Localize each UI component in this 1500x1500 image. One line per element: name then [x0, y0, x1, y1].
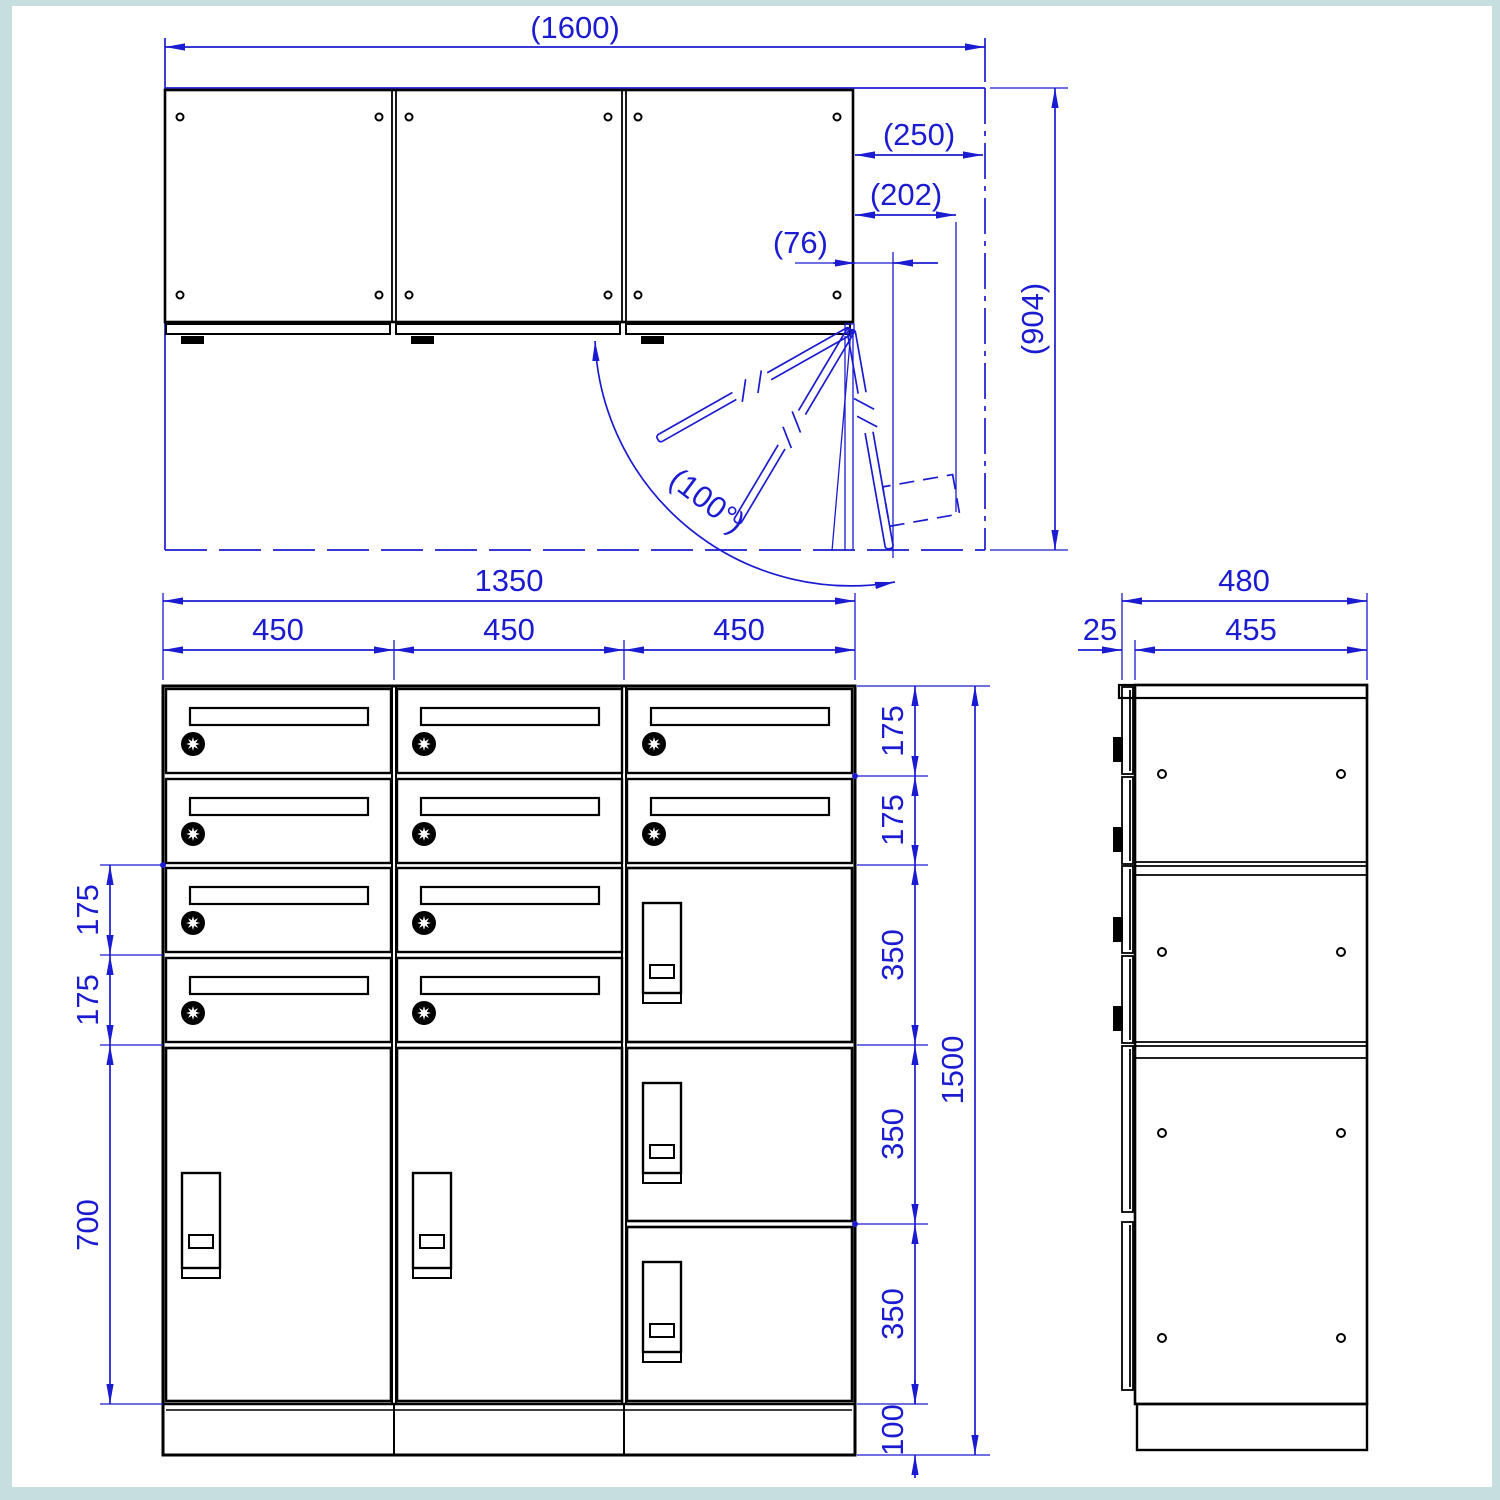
dim-left-row4: 175 [70, 974, 105, 1026]
handle-block-top [181, 336, 204, 344]
side-view: 480 455 25 [1078, 563, 1367, 1450]
door-open-30 [653, 322, 855, 447]
door-edges-closed [166, 324, 850, 344]
dim-column-width: 450 [483, 612, 535, 647]
side-base [1137, 1404, 1367, 1450]
dim-door-protrusion: (76) [773, 225, 828, 260]
dim-handle-clearance: (202) [870, 177, 942, 212]
dim-base-height: 100 [875, 1404, 910, 1456]
swing-arc [595, 341, 895, 586]
handle-block-top [411, 336, 434, 344]
dim-depth-overall: 480 [1218, 563, 1270, 598]
dim-mid-door1: 350 [875, 929, 910, 981]
top-view: (100°) (1600) (250) (202) (76) (904) [165, 10, 1068, 586]
dim-overall-depth: (904) [1015, 283, 1050, 355]
dim-door-clearance: (250) [883, 117, 955, 152]
dim-column-width: 450 [713, 612, 765, 647]
dim-body-width: 1350 [475, 563, 544, 598]
dim-large-door-height: 700 [70, 1199, 105, 1251]
side-cabinet-body [1135, 685, 1367, 1404]
dim-door-thickness: 25 [1083, 612, 1117, 647]
door-open-60 [729, 325, 859, 527]
dim-depth-body: 455 [1225, 612, 1277, 647]
dim-overall-height: 1500 [935, 1036, 970, 1105]
front-cabinet-outline [163, 686, 855, 1455]
front-view: 1350 450 450 450 175 175 700 [70, 563, 990, 1478]
handle-open-dashed [883, 475, 960, 527]
dim-column-width: 450 [252, 612, 304, 647]
door-swing-positions: (100°) [595, 317, 963, 586]
side-view-dimensions: 480 455 25 [1078, 563, 1367, 680]
dim-right-row1: 175 [875, 705, 910, 757]
side-door-edges [1122, 687, 1133, 1390]
dim-overall-width: (1600) [530, 10, 620, 45]
top-cabinet-body [165, 90, 853, 344]
dim-left-row3: 175 [70, 884, 105, 936]
cad-drawing: (100°) (1600) (250) (202) (76) (904) [0, 0, 1500, 1500]
handle-block-top [641, 336, 664, 344]
dim-right-row2: 175 [875, 794, 910, 846]
dim-door-angle: (100°) [663, 461, 752, 540]
door-open-100 [842, 317, 963, 550]
dim-mid-door3: 350 [875, 1288, 910, 1340]
dim-mid-door2: 350 [875, 1108, 910, 1160]
